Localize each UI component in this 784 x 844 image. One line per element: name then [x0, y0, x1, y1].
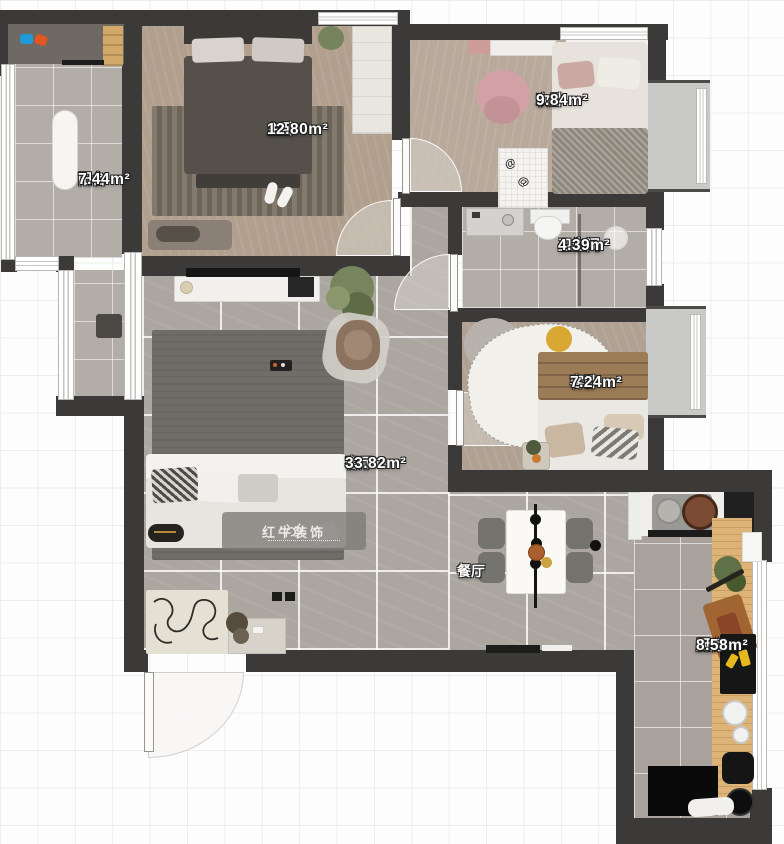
dining-chair	[566, 518, 593, 549]
pillow	[192, 37, 245, 63]
room-area: 7.24m²	[570, 373, 622, 393]
plant-leaves	[233, 628, 249, 644]
dining-chair	[478, 518, 505, 549]
window	[1, 64, 15, 260]
dresser-item	[156, 226, 200, 242]
pillow	[252, 37, 305, 63]
balcony-sliding-door	[124, 252, 142, 400]
balcony-stool	[96, 314, 122, 338]
wall-segment	[646, 416, 664, 472]
window	[15, 256, 59, 271]
sink-bowl	[722, 700, 748, 726]
wall-segment	[616, 818, 772, 844]
wall-speaker	[272, 592, 282, 601]
counter-edge	[648, 530, 722, 537]
entry-rug	[146, 590, 228, 654]
wall-segment	[6, 10, 124, 24]
master-bedroom-door-leaf	[393, 198, 401, 256]
blanket	[552, 128, 648, 194]
bed	[184, 56, 312, 174]
pillow	[597, 57, 641, 90]
second-bedroom-door-leaf	[402, 138, 410, 194]
remote-button	[273, 363, 277, 367]
window	[696, 88, 707, 184]
media-box	[288, 277, 314, 297]
floor-vent	[486, 645, 540, 653]
window	[690, 314, 701, 410]
yellow-pouf	[546, 326, 572, 352]
entry-door-arc	[148, 672, 244, 758]
storage-item-blue	[20, 34, 33, 44]
guest-bedroom-door-leaf	[456, 390, 464, 446]
fruit-bowl	[532, 454, 541, 463]
pillow	[557, 60, 596, 90]
room-area: 12.80m²	[267, 120, 328, 140]
bathroom-door-leaf	[450, 254, 458, 312]
lounge-chair-seat	[484, 96, 520, 124]
washing-machine-door	[502, 214, 514, 226]
wall-segment	[124, 398, 144, 656]
plant	[318, 26, 344, 50]
watermark-subline	[268, 540, 340, 541]
wall-segment	[246, 650, 620, 672]
wall-segment	[448, 470, 772, 492]
wall-segment	[122, 24, 142, 254]
counter-box	[742, 532, 762, 562]
console-deco	[252, 626, 264, 634]
room-area: 4.39m²	[558, 236, 610, 256]
floor-plan: @ @ 红牛装饰	[0, 0, 784, 844]
pendant-lamp	[530, 514, 541, 525]
striped-pillow	[591, 426, 640, 461]
wall-speaker	[285, 592, 295, 601]
washing-machine-panel	[472, 212, 480, 218]
sofa-tray	[148, 524, 184, 542]
entry-door-leaf	[144, 672, 154, 752]
armchair-cushion	[344, 330, 372, 360]
sink-bowl	[732, 726, 750, 744]
pillow	[238, 474, 278, 502]
balcony-shelf	[52, 110, 78, 190]
rug-line-art	[146, 590, 228, 654]
tray-handle	[154, 531, 176, 533]
wardrobe	[352, 26, 392, 134]
storage-cabinet	[103, 26, 123, 66]
pot	[656, 498, 682, 524]
room-area: 8.58m²	[696, 636, 748, 656]
bed-bench	[196, 174, 300, 188]
food-plate	[541, 557, 552, 568]
window	[58, 270, 74, 400]
wall-segment	[646, 24, 666, 82]
wall-segment	[448, 308, 650, 322]
wall-segment	[124, 650, 148, 672]
watermark: 红牛装饰	[222, 512, 366, 550]
plant	[526, 440, 541, 455]
desk	[490, 40, 556, 56]
wall-segment	[392, 24, 410, 140]
wall-segment	[616, 650, 634, 844]
table-knob	[590, 540, 601, 551]
remote-button	[281, 363, 285, 367]
tv	[186, 268, 300, 277]
wall-segment	[448, 207, 462, 255]
wall-segment	[646, 190, 664, 230]
pillow	[197, 471, 241, 503]
door-track	[62, 60, 104, 65]
room-name: 餐厅	[457, 562, 485, 580]
shower-glass	[578, 214, 581, 306]
floor-mat	[687, 796, 734, 817]
dining-chair	[566, 552, 593, 583]
watermark-text: 红牛装饰	[262, 522, 326, 541]
plant-leaves	[326, 286, 350, 310]
rice-cooker	[722, 752, 754, 784]
window	[646, 228, 662, 286]
window	[318, 12, 398, 25]
room-area: 9.84m²	[536, 91, 588, 111]
window	[560, 27, 648, 40]
room-area: 33.82m²	[345, 454, 406, 474]
plaid-pillow	[151, 466, 199, 503]
pillow	[544, 422, 586, 459]
threshold	[542, 645, 572, 651]
room-area: 7.44m²	[78, 170, 130, 190]
decor-dish	[180, 281, 193, 294]
